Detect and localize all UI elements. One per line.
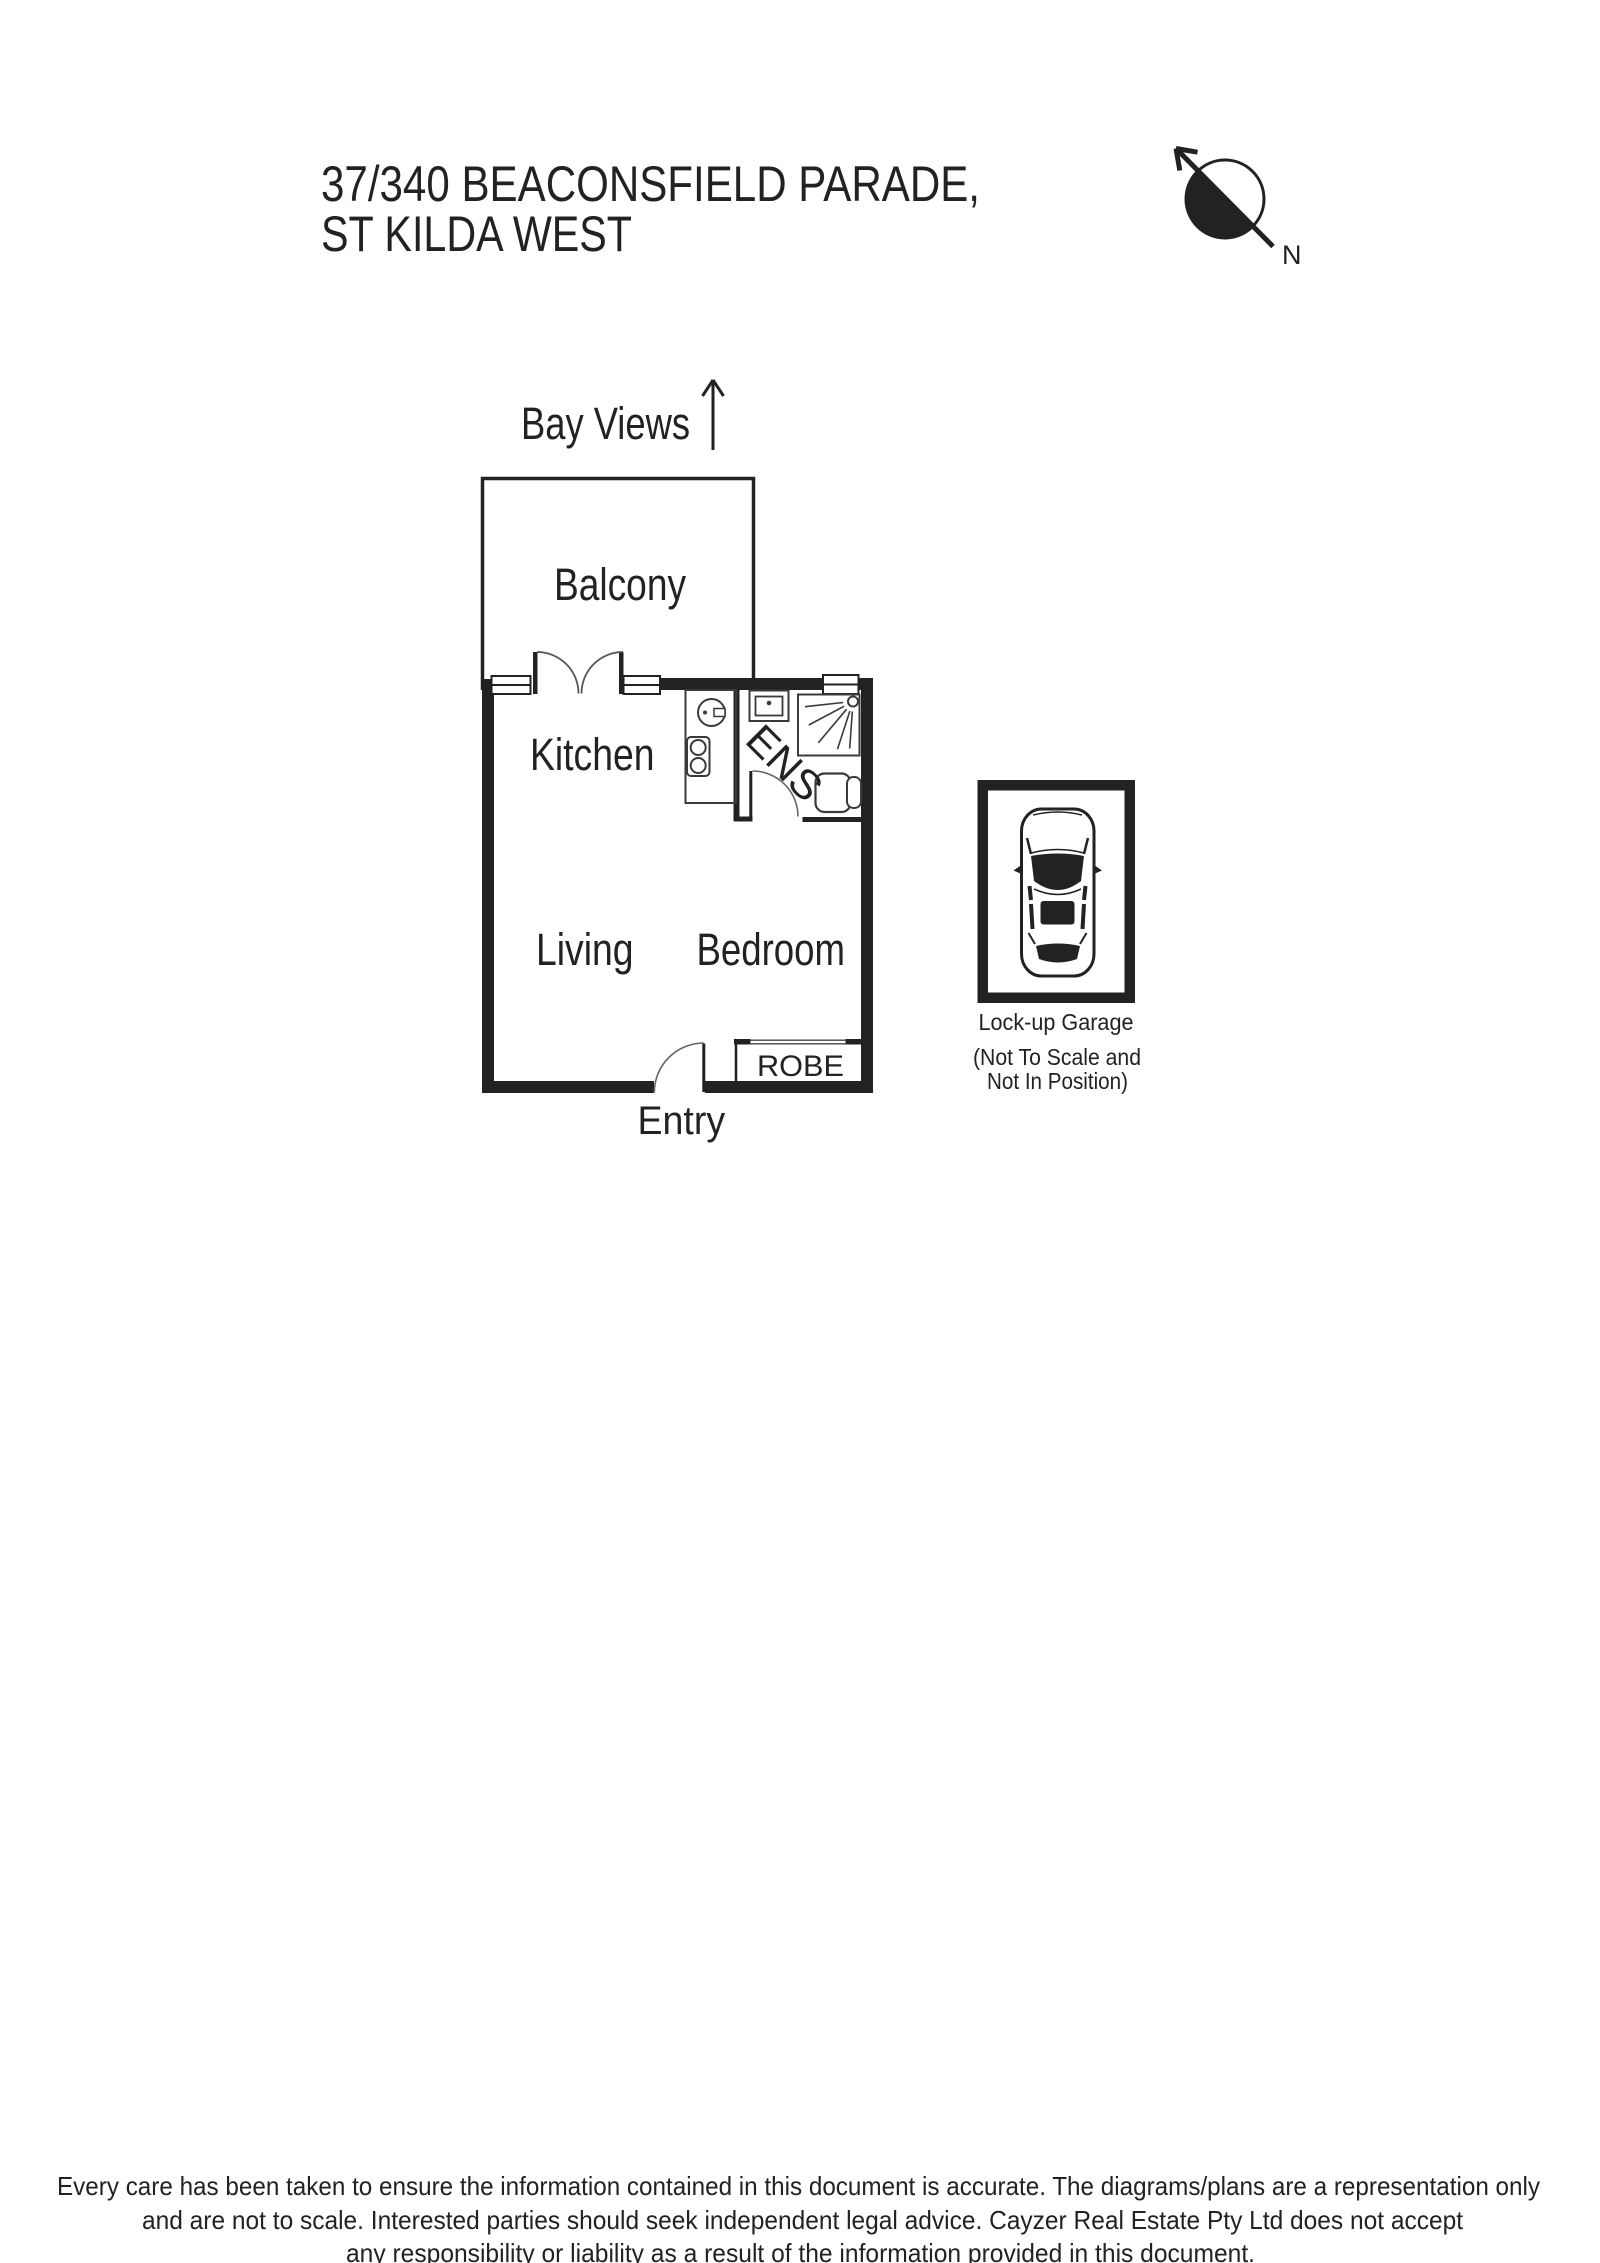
svg-text:Bedroom: Bedroom bbox=[697, 924, 846, 975]
svg-text:Living: Living bbox=[536, 924, 634, 975]
svg-text:Kitchen: Kitchen bbox=[530, 729, 655, 780]
svg-text:Lock-up Garage: Lock-up Garage bbox=[979, 1009, 1134, 1035]
svg-text:and are not to scale. Interest: and are not to scale. Interested parties… bbox=[142, 2205, 1464, 2235]
svg-text:Entry: Entry bbox=[638, 1099, 726, 1143]
svg-text:Balcony: Balcony bbox=[554, 559, 686, 610]
svg-text:any responsibility or liabilit: any responsibility or liability as a res… bbox=[346, 2238, 1255, 2263]
svg-text:Not In Position): Not In Position) bbox=[987, 1068, 1128, 1094]
svg-text:ST KILDA WEST: ST KILDA WEST bbox=[321, 206, 632, 262]
svg-text:(Not To Scale and: (Not To Scale and bbox=[973, 1044, 1141, 1070]
svg-text:37/340 BEACONSFIELD PARADE,: 37/340 BEACONSFIELD PARADE, bbox=[321, 156, 980, 212]
svg-text:N: N bbox=[1282, 240, 1302, 270]
svg-text:Bay Views: Bay Views bbox=[521, 398, 690, 449]
svg-text:ROBE: ROBE bbox=[757, 1050, 844, 1083]
svg-text:Every care has been taken to e: Every care has been taken to ensure the … bbox=[57, 2171, 1540, 2201]
